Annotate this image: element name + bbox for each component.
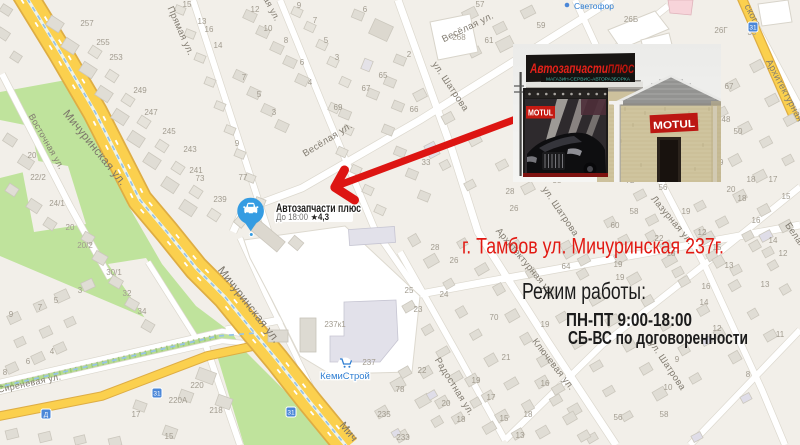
svg-text:6: 6 (300, 58, 305, 67)
svg-text:г. Тамбов ул. Мичуринская 237г: г. Тамбов ул. Мичуринская 237г. (462, 234, 724, 259)
svg-text:66: 66 (410, 105, 419, 114)
svg-text:77: 77 (239, 173, 248, 182)
svg-text:253: 253 (109, 53, 123, 62)
svg-text:14: 14 (214, 41, 223, 50)
svg-text:20: 20 (727, 185, 736, 194)
svg-text:Автозапчасти: Автозапчасти (529, 61, 608, 76)
svg-text:25: 25 (405, 286, 414, 295)
svg-text:50: 50 (734, 127, 743, 136)
svg-text:18: 18 (524, 410, 533, 419)
svg-text:7: 7 (242, 73, 247, 82)
svg-text:22: 22 (418, 366, 427, 375)
svg-text:21: 21 (502, 353, 511, 362)
svg-text:13: 13 (761, 280, 770, 289)
svg-text:26Б: 26Б (624, 15, 638, 24)
svg-text:9: 9 (9, 310, 14, 319)
svg-text:22/2: 22/2 (30, 173, 46, 182)
svg-text:13: 13 (725, 261, 734, 270)
svg-text:31: 31 (287, 410, 295, 417)
svg-text:73: 73 (196, 174, 205, 183)
svg-text:9: 9 (297, 1, 302, 10)
svg-text:6: 6 (26, 357, 31, 366)
svg-text:19: 19 (614, 260, 623, 269)
svg-text:18: 18 (738, 194, 747, 203)
svg-text:57: 57 (476, 0, 485, 9)
svg-text:220: 220 (190, 381, 204, 390)
svg-text:ПН-ПТ 9:00-18:00: ПН-ПТ 9:00-18:00 (566, 310, 692, 330)
svg-text:58: 58 (660, 410, 669, 419)
svg-text:31: 31 (153, 391, 161, 398)
svg-text:7: 7 (38, 303, 43, 312)
svg-text:8: 8 (3, 368, 8, 377)
svg-text:26: 26 (510, 204, 519, 213)
svg-text:3: 3 (335, 53, 340, 62)
svg-text:Режим работы:: Режим работы: (522, 278, 646, 304)
svg-text:7: 7 (313, 16, 318, 25)
svg-text:19: 19 (472, 376, 481, 385)
svg-text:17: 17 (769, 175, 778, 184)
svg-text:24: 24 (440, 290, 449, 299)
svg-text:3: 3 (272, 108, 277, 117)
svg-text:48: 48 (722, 115, 731, 124)
svg-text:МАГАЗИН-СЕРВИС-АВТОРАЗБОРКА: МАГАЗИН-СЕРВИС-АВТОРАЗБОРКА (546, 77, 630, 82)
svg-text:4,3: 4,3 (318, 212, 329, 223)
svg-text:9: 9 (235, 139, 240, 148)
svg-text:59: 59 (537, 21, 546, 30)
svg-text:КемиСтрой: КемиСтрой (320, 371, 370, 382)
svg-text:235: 235 (377, 410, 391, 419)
svg-text:6: 6 (363, 5, 368, 14)
svg-text:14: 14 (769, 236, 778, 245)
svg-text:16: 16 (702, 282, 711, 291)
svg-text:19: 19 (541, 320, 550, 329)
svg-text:237к1: 237к1 (324, 320, 346, 329)
svg-text:218: 218 (209, 406, 223, 415)
svg-text:32: 32 (123, 289, 132, 298)
svg-text:69: 69 (334, 103, 343, 112)
svg-text:5: 5 (324, 36, 329, 45)
svg-text:15: 15 (782, 192, 791, 201)
svg-text:СБ-ВС по договоренности: СБ-ВС по договоренности (568, 328, 748, 348)
svg-text:26Г: 26Г (714, 26, 728, 35)
svg-text:268: 268 (452, 33, 466, 42)
svg-text:15: 15 (165, 432, 174, 441)
svg-text:16: 16 (752, 216, 761, 225)
svg-text:233: 233 (396, 433, 410, 442)
svg-text:245: 245 (162, 127, 176, 136)
svg-text:26: 26 (450, 256, 459, 265)
svg-text:11: 11 (776, 330, 785, 339)
svg-text:70: 70 (490, 313, 499, 322)
svg-text:4: 4 (308, 78, 313, 87)
svg-text:До 18:00: До 18:00 (276, 212, 308, 223)
svg-text:257: 257 (80, 19, 94, 28)
svg-text:8: 8 (284, 36, 289, 45)
svg-text:2: 2 (407, 50, 412, 59)
svg-text:5: 5 (257, 90, 262, 99)
svg-text:28: 28 (506, 187, 515, 196)
svg-text:18: 18 (457, 415, 466, 424)
svg-text:8: 8 (746, 370, 751, 379)
svg-text:243: 243 (183, 145, 197, 154)
svg-text:67: 67 (362, 84, 371, 93)
svg-text:10: 10 (664, 383, 673, 392)
svg-text:20/2: 20/2 (77, 241, 93, 250)
svg-text:17: 17 (132, 410, 141, 419)
svg-text:10: 10 (264, 24, 273, 33)
svg-text:61: 61 (485, 36, 494, 45)
svg-text:3: 3 (78, 286, 83, 295)
svg-text:56: 56 (614, 413, 623, 422)
svg-text:23: 23 (414, 305, 423, 314)
svg-text:5: 5 (54, 296, 59, 305)
svg-text:4: 4 (50, 347, 55, 356)
svg-text:9: 9 (675, 355, 680, 364)
svg-text:28: 28 (431, 243, 440, 252)
svg-text:13: 13 (516, 431, 525, 440)
svg-text:19: 19 (682, 207, 691, 216)
svg-text:239: 239 (213, 195, 227, 204)
svg-text:67: 67 (725, 82, 734, 91)
svg-text:Светофор: Светофор (574, 1, 614, 11)
svg-text:20: 20 (66, 223, 75, 232)
svg-text:247: 247 (144, 108, 158, 117)
svg-text:24/1: 24/1 (49, 199, 65, 208)
svg-text:12: 12 (779, 249, 788, 258)
svg-text:ПЛЮС: ПЛЮС (608, 62, 634, 76)
svg-text:255: 255 (96, 38, 110, 47)
svg-text:MOTUL: MOTUL (528, 109, 553, 118)
svg-text:15: 15 (183, 0, 192, 9)
svg-text:60: 60 (611, 221, 620, 230)
svg-text:237: 237 (362, 358, 376, 367)
svg-text:20: 20 (28, 151, 37, 160)
svg-text:17: 17 (487, 393, 496, 402)
svg-text:78: 78 (396, 385, 405, 394)
svg-text:56: 56 (659, 183, 668, 192)
svg-text:34: 34 (138, 307, 147, 316)
svg-text:31: 31 (749, 25, 757, 32)
svg-text:12: 12 (251, 5, 260, 14)
svg-text:Д: Д (44, 412, 49, 419)
svg-text:14: 14 (700, 298, 709, 307)
svg-text:58: 58 (630, 207, 639, 216)
svg-text:64: 64 (562, 262, 571, 271)
svg-text:16: 16 (541, 379, 550, 388)
svg-text:18: 18 (747, 175, 756, 184)
svg-text:220А: 220А (169, 396, 188, 405)
svg-text:65: 65 (379, 71, 388, 80)
svg-text:MOTUL: MOTUL (653, 118, 696, 132)
svg-text:30/1: 30/1 (106, 268, 122, 277)
svg-text:16: 16 (205, 25, 214, 34)
svg-text:249: 249 (133, 86, 147, 95)
svg-text:15: 15 (500, 414, 509, 423)
svg-text:33: 33 (422, 158, 431, 167)
svg-text:20: 20 (442, 399, 451, 408)
